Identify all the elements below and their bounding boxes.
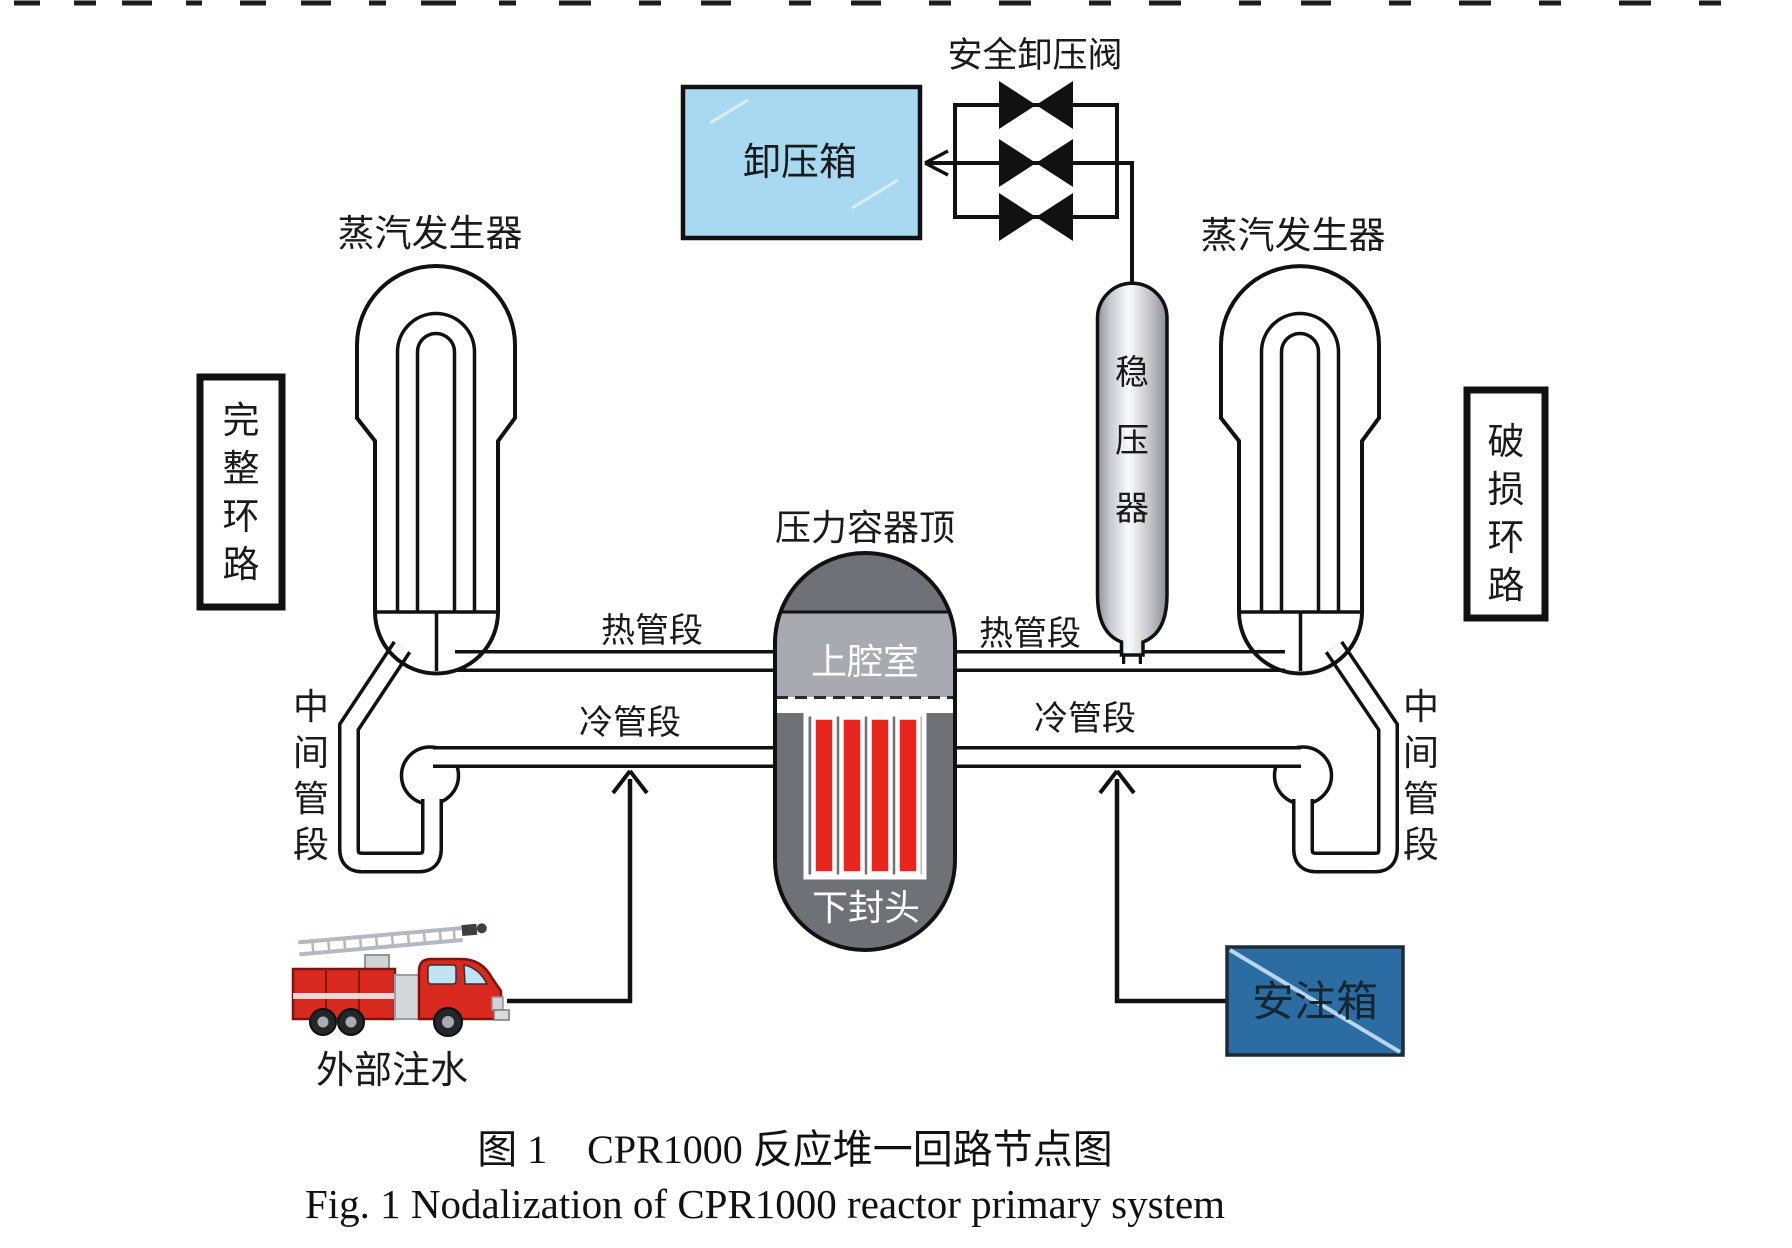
valve-icon xyxy=(999,81,1073,129)
fuel-channel xyxy=(898,718,919,874)
broken-loop-box: 破 损 环 路 xyxy=(1467,390,1545,618)
sg-right-label: 蒸汽发生器 xyxy=(1201,215,1386,257)
svg-text:环: 环 xyxy=(223,497,260,538)
cab-window xyxy=(428,965,456,984)
pressurizer-relief-system: 安全卸压阀 卸压箱 稳 压 器 xyxy=(683,36,1167,655)
left-sg-utube-inner xyxy=(418,334,455,613)
sg-left-label: 蒸汽发生器 xyxy=(338,213,523,255)
front-grille xyxy=(492,997,503,1010)
pressurizer-label-char: 器 xyxy=(1115,491,1149,528)
downcomer-gap xyxy=(773,697,957,713)
fuel-channel xyxy=(842,718,863,874)
svg-text:破: 破 xyxy=(1488,422,1525,463)
left-steam-generator xyxy=(357,266,515,674)
accumulator-injection-line xyxy=(1100,771,1227,1001)
upper-plenum-label: 上腔室 xyxy=(811,642,919,682)
figure-page: 上腔室 下封头 安全卸压阀 卸压箱 稳 压 器 完 整 环 路 破 损 环 路 xyxy=(0,0,1792,1248)
pressurizer-label-char: 压 xyxy=(1115,423,1149,460)
intact-loop-box: 完 整 环 路 xyxy=(200,377,282,607)
right-sg-utube-outer xyxy=(1262,314,1339,612)
injection-tank-label: 安注箱 xyxy=(1252,979,1378,1026)
svg-text:中: 中 xyxy=(1403,687,1439,727)
pressurizer-vessel xyxy=(1098,283,1168,655)
svg-text:段: 段 xyxy=(1403,825,1439,865)
ladder xyxy=(298,923,488,954)
svg-text:间: 间 xyxy=(293,733,329,773)
svg-text:路: 路 xyxy=(1488,566,1525,607)
fuel-channel xyxy=(870,718,891,874)
cold-leg-left-label: 冷管段 xyxy=(579,704,681,742)
svg-text:环: 环 xyxy=(1488,518,1525,559)
svg-text:中: 中 xyxy=(293,687,329,727)
intermediate-leg-right-label: 中 间 管 段 xyxy=(1403,687,1439,865)
nodalization-diagram: 上腔室 下封头 安全卸压阀 卸压箱 稳 压 器 完 整 环 路 破 损 环 路 xyxy=(0,0,1792,1248)
left-sg-utube-outer xyxy=(398,314,475,612)
lower-head-label: 下封头 xyxy=(812,888,920,928)
pressurizer-label-char: 稳 xyxy=(1115,354,1149,392)
svg-text:完: 完 xyxy=(223,400,260,442)
safety-relief-valve-label: 安全卸压阀 xyxy=(947,36,1122,75)
valve-icon xyxy=(999,193,1073,241)
svg-text:管: 管 xyxy=(293,779,329,819)
fuel-channel xyxy=(814,718,835,874)
figure-caption-zh: 图 1 CPR1000 反应堆一回路节点图 xyxy=(477,1127,1113,1172)
right-steam-generator xyxy=(1221,266,1379,673)
pump-panel xyxy=(395,975,419,1019)
svg-text:整: 整 xyxy=(223,448,260,490)
svg-text:间: 间 xyxy=(1403,733,1439,773)
valve-icon xyxy=(999,139,1073,187)
injection-tank: 安注箱 xyxy=(1227,947,1403,1055)
svg-text:路: 路 xyxy=(223,545,260,586)
hot-leg-right-label: 热管段 xyxy=(979,615,1081,653)
intermediate-leg-left-label: 中 间 管 段 xyxy=(293,687,329,865)
external-injection-line xyxy=(507,771,647,1001)
front-bumper xyxy=(494,1010,509,1020)
figure-caption-en: Fig. 1 Nodalization of CPR1000 reactor p… xyxy=(305,1181,1225,1227)
right-sg-utube-inner xyxy=(1282,334,1319,613)
external-injection-label: 外部注水 xyxy=(316,1050,468,1092)
cold-leg-right-label: 冷管段 xyxy=(1034,700,1136,738)
svg-text:损: 损 xyxy=(1488,470,1525,511)
svg-text:管: 管 xyxy=(1403,779,1439,819)
vessel-top-label: 压力容器顶 xyxy=(775,508,955,548)
reactor-vessel: 上腔室 下封头 xyxy=(773,553,957,950)
relief-tank-label: 卸压箱 xyxy=(743,142,857,184)
svg-text:段: 段 xyxy=(293,825,329,865)
fire-truck xyxy=(293,923,509,1036)
hot-leg-left-label: 热管段 xyxy=(601,612,703,650)
